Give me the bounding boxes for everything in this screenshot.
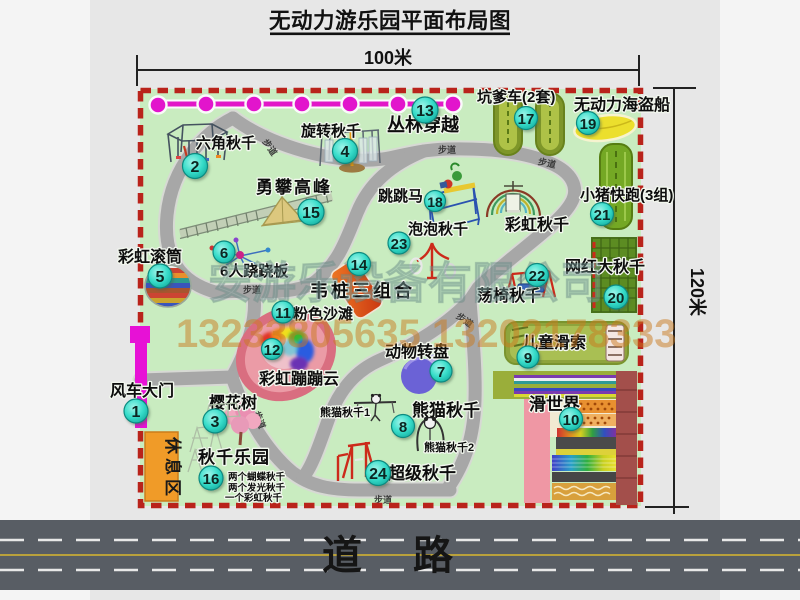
svg-text:1: 1 [132, 404, 141, 421]
svg-text:泡泡秋千: 泡泡秋千 [408, 220, 468, 238]
svg-text:5: 5 [156, 269, 165, 286]
svg-text:休息区: 休息区 [163, 436, 183, 500]
svg-text:坑爹车(2套): 坑爹车(2套) [477, 88, 555, 106]
svg-text:步道: 步道 [438, 144, 456, 155]
svg-text:彩虹秋千: 彩虹秋千 [504, 215, 569, 234]
svg-text:超级秋千: 超级秋千 [388, 463, 456, 483]
svg-text:100米: 100米 [364, 47, 413, 68]
svg-text:17: 17 [518, 111, 535, 128]
svg-text:7: 7 [437, 364, 445, 381]
svg-text:勇攀高峰: 勇攀高峰 [256, 177, 332, 197]
svg-text:20: 20 [608, 290, 625, 307]
svg-text:旋转秋千: 旋转秋千 [300, 122, 361, 140]
svg-text:彩虹滚筒: 彩虹滚筒 [117, 247, 182, 266]
svg-text:23: 23 [391, 236, 408, 253]
svg-text:10: 10 [563, 412, 580, 429]
svg-text:15: 15 [302, 205, 320, 222]
svg-text:4: 4 [341, 144, 350, 161]
svg-text:道: 道 [322, 534, 362, 578]
svg-text:22: 22 [529, 268, 546, 285]
svg-text:18: 18 [427, 194, 443, 210]
svg-text:2: 2 [191, 159, 200, 176]
svg-text:14: 14 [351, 257, 368, 274]
svg-text:跳跳马: 跳跳马 [378, 187, 423, 205]
svg-text:9: 9 [524, 350, 532, 367]
svg-text:无动力游乐园平面布局图: 无动力游乐园平面布局图 [269, 8, 511, 33]
svg-text:六角秋千: 六角秋千 [196, 134, 256, 152]
svg-text:13: 13 [416, 103, 434, 120]
svg-text:120米: 120米 [687, 268, 708, 317]
svg-text:熊猫秋千1: 熊猫秋千1 [320, 405, 370, 419]
svg-text:小猪快跑(3组): 小猪快跑(3组) [580, 186, 673, 204]
svg-text:11: 11 [275, 305, 291, 322]
svg-text:8: 8 [399, 419, 407, 436]
svg-text:彩虹蹦蹦云: 彩虹蹦蹦云 [258, 369, 339, 388]
svg-text:24: 24 [369, 466, 387, 483]
svg-text:两个蝴蝶秋千: 两个蝴蝶秋千 [228, 471, 286, 483]
svg-text:熊猫秋千2: 熊猫秋千2 [424, 440, 474, 454]
svg-text:12: 12 [264, 342, 281, 359]
svg-text:13233805635 13202178333: 13233805635 13202178333 [176, 312, 677, 356]
svg-text:21: 21 [594, 207, 611, 224]
svg-text:3: 3 [211, 414, 220, 431]
svg-text:路: 路 [413, 534, 454, 578]
svg-text:一个彩虹秋千: 一个彩虹秋千 [225, 492, 283, 504]
svg-text:16: 16 [203, 471, 220, 488]
svg-text:秋千乐园: 秋千乐园 [198, 447, 270, 467]
svg-text:19: 19 [580, 116, 597, 133]
svg-text:风车大门: 风车大门 [110, 381, 174, 400]
svg-text:6: 6 [220, 245, 228, 262]
svg-text:熊猫秋千: 熊猫秋千 [412, 400, 480, 420]
